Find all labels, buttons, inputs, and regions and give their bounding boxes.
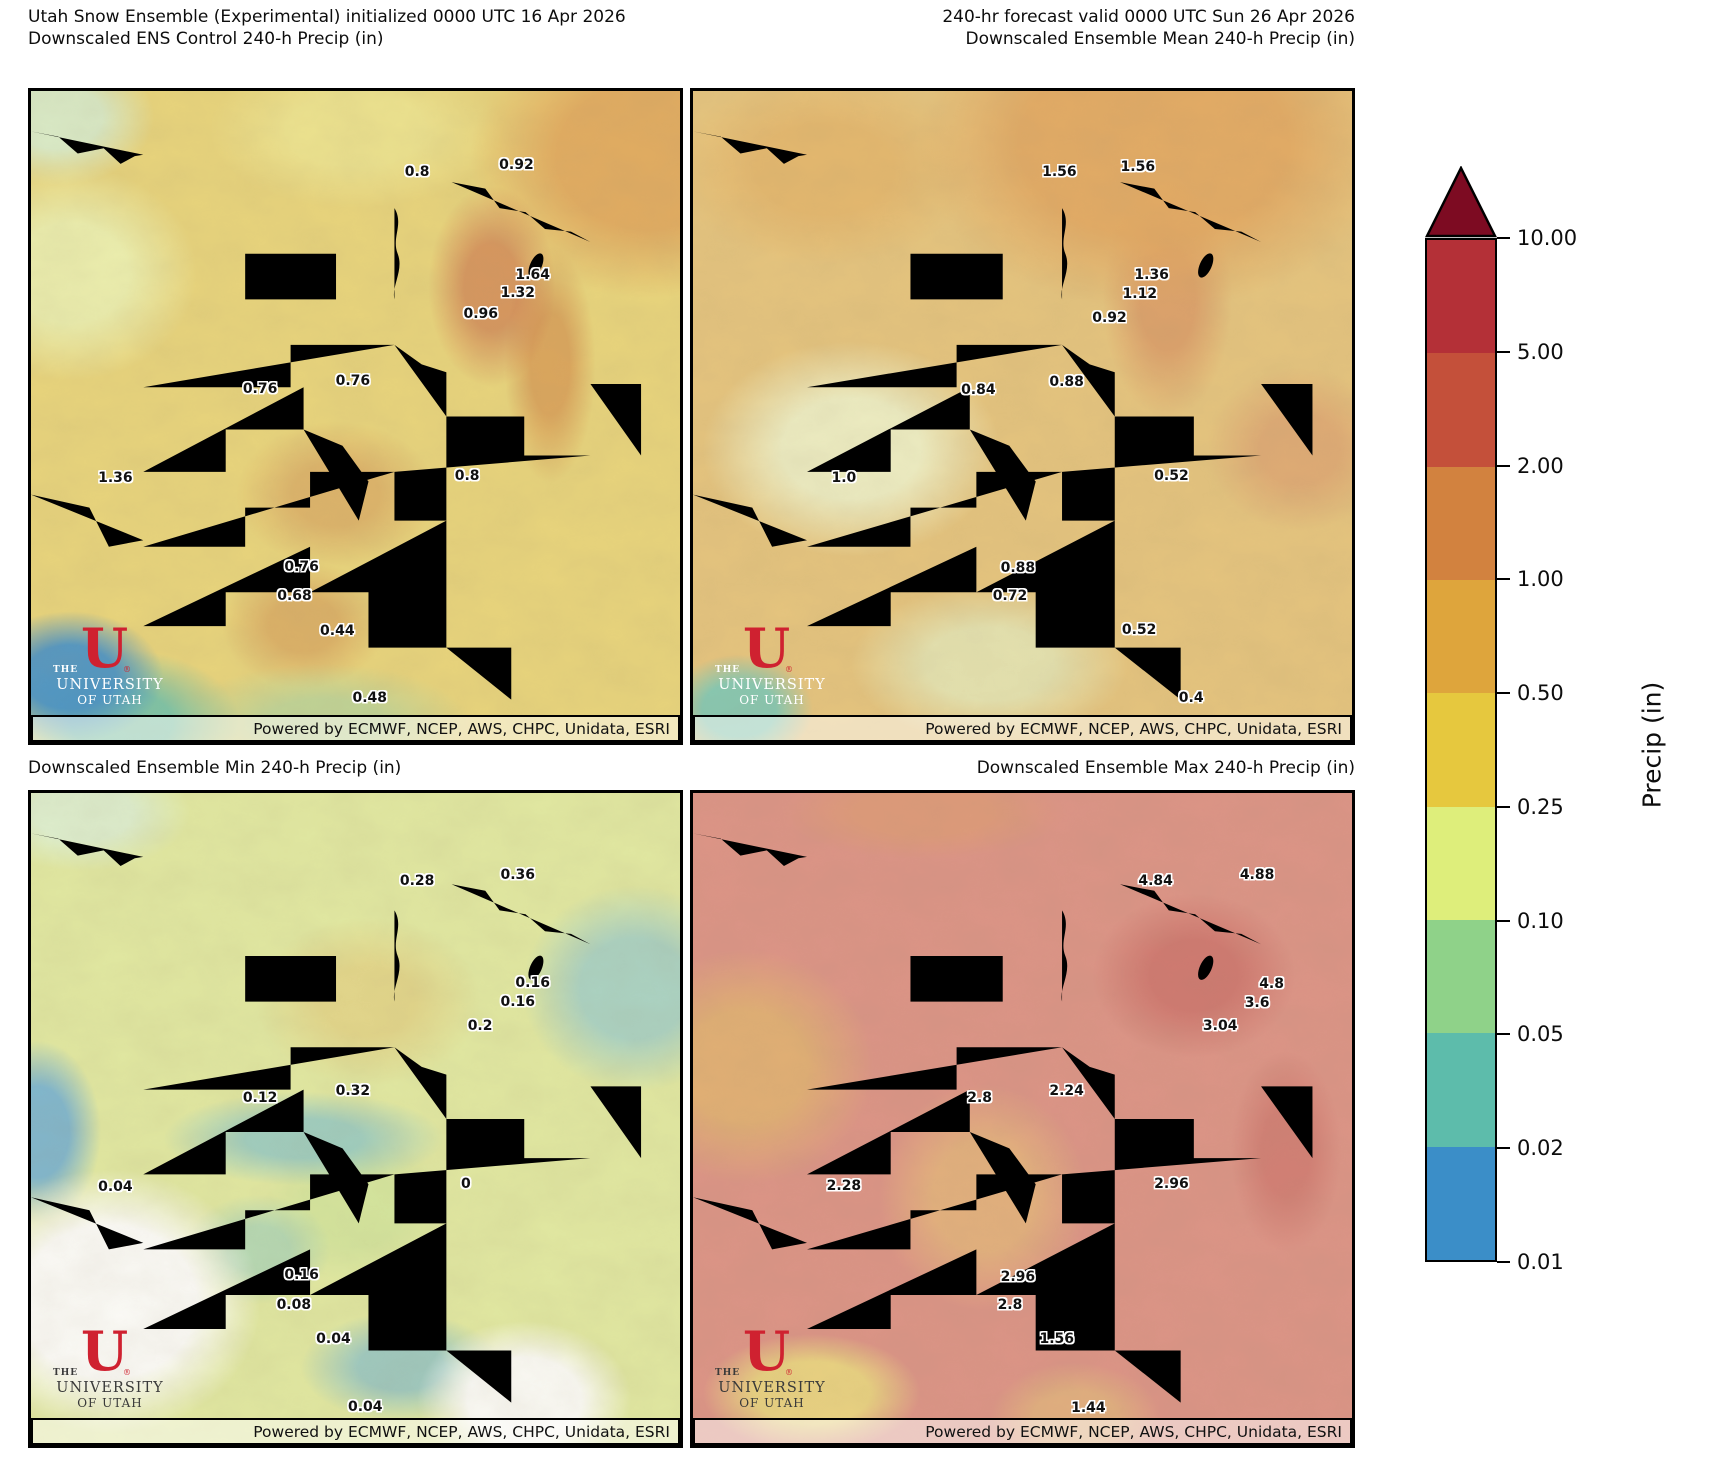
precip-value-label: 0.76 xyxy=(284,559,319,575)
map-panel-ens-control: 0.80.921.641.320.960.760.761.360.80.760.… xyxy=(28,88,683,745)
title-bottom-left: Downscaled Ensemble Min 240-h Precip (in… xyxy=(28,757,401,779)
precip-value-label: 1.56 xyxy=(1121,159,1156,175)
university-of-utah-logo: THE U ® UNIVERSITY OF UTAH xyxy=(45,629,175,709)
block-u-icon: U xyxy=(81,621,128,675)
logo-of-utah-text: OF UTAH xyxy=(45,1396,175,1410)
block-u-icon: U xyxy=(81,1324,128,1378)
logo-university-text: UNIVERSITY xyxy=(707,1380,837,1396)
precip-value-label: 0.16 xyxy=(515,975,550,991)
colorbar-segment xyxy=(1427,693,1495,806)
precip-value-label: 0.16 xyxy=(500,994,535,1010)
credit-bar: Powered by ECMWF, NCEP, AWS, CHPC, Unida… xyxy=(693,715,1352,742)
forecast-figure: Utah Snow Ensemble (Experimental) initia… xyxy=(0,0,1736,1470)
precip-value-label: 0.88 xyxy=(1001,560,1036,576)
tick-label: 2.00 xyxy=(1517,454,1564,478)
colorbar-tick: 0.05 xyxy=(1497,1022,1564,1046)
precip-value-label: 1.56 xyxy=(1039,1331,1074,1347)
colorbar-segment xyxy=(1427,920,1495,1033)
precip-value-label: 2.8 xyxy=(998,1297,1023,1313)
precip-value-label: 1.64 xyxy=(515,267,550,283)
precip-value-label: 0.72 xyxy=(993,588,1028,604)
precip-value-label: 2.8 xyxy=(967,1090,992,1106)
precip-value-label: 0.16 xyxy=(284,1267,319,1283)
tick-mark xyxy=(1497,465,1510,467)
colorbar-segment xyxy=(1427,240,1495,353)
colorbar-tick: 0.10 xyxy=(1497,909,1564,933)
logo-of-utah-text: OF UTAH xyxy=(707,1396,837,1410)
precip-value-label: 1.12 xyxy=(1123,286,1158,302)
precip-value-label: 0.2 xyxy=(468,1018,493,1034)
tick-label: 10.00 xyxy=(1517,226,1577,250)
tick-mark xyxy=(1497,578,1510,580)
title-top-left: Utah Snow Ensemble (Experimental) initia… xyxy=(28,6,626,50)
precip-value-label: 0.04 xyxy=(348,1399,383,1415)
colorbar-tick: 10.00 xyxy=(1497,226,1577,250)
colorbar-segment xyxy=(1427,353,1495,466)
logo-of-utah-text: OF UTAH xyxy=(707,693,837,707)
precip-value-label: 1.36 xyxy=(1134,267,1169,283)
precip-value-label: 0.52 xyxy=(1122,622,1157,638)
precip-value-label: 0.92 xyxy=(499,157,534,173)
logo-the-text: THE xyxy=(715,1368,740,1378)
colorbar-ticks: 10.005.002.001.000.500.250.100.050.020.0… xyxy=(1497,238,1617,1262)
colorbar-tick: 0.25 xyxy=(1497,795,1564,819)
precip-value-label: 0.12 xyxy=(243,1090,278,1106)
tick-label: 0.50 xyxy=(1517,681,1564,705)
credit-bar: Powered by ECMWF, NCEP, AWS, CHPC, Unida… xyxy=(31,1418,680,1445)
precip-value-label: 0 xyxy=(461,1176,471,1192)
precip-value-label: 1.32 xyxy=(500,285,535,301)
tick-label: 0.25 xyxy=(1517,795,1564,819)
map-panel-ensemble-max: 4.844.884.83.63.042.82.242.282.962.962.8… xyxy=(690,790,1355,1448)
colorbar-segment xyxy=(1427,807,1495,920)
precip-value-label: 0.52 xyxy=(1154,468,1189,484)
precip-value-label: 0.8 xyxy=(405,164,430,180)
logo-the-text: THE xyxy=(53,1368,78,1378)
precip-value-label: 0.36 xyxy=(500,867,535,883)
precip-value-label: 2.28 xyxy=(827,1178,862,1194)
tick-mark xyxy=(1497,920,1510,922)
precip-value-label: 0.4 xyxy=(1179,690,1204,706)
tick-label: 1.00 xyxy=(1517,567,1564,591)
colorbar-segment xyxy=(1427,1147,1495,1260)
tick-mark xyxy=(1497,692,1510,694)
precip-value-label: 0.32 xyxy=(336,1083,371,1099)
registered-mark-icon: ® xyxy=(123,1368,131,1377)
colorbar xyxy=(1425,238,1497,1262)
precip-value-label: 0.8 xyxy=(455,468,480,484)
map-panel-ensemble-mean: 1.561.561.361.120.920.840.881.00.520.880… xyxy=(690,88,1355,745)
colorbar-segment xyxy=(1427,1033,1495,1146)
tick-mark xyxy=(1497,1033,1510,1035)
tick-label: 0.01 xyxy=(1517,1250,1564,1274)
precip-value-label: 2.96 xyxy=(1154,1176,1189,1192)
logo-of-utah-text: OF UTAH xyxy=(45,693,175,707)
precip-value-label: 4.8 xyxy=(1259,976,1284,992)
colorbar-overflow-arrow xyxy=(1425,166,1497,238)
precip-value-label: 0.04 xyxy=(98,1179,133,1195)
colorbar-segment xyxy=(1427,467,1495,580)
precip-value-label: 1.44 xyxy=(1071,1400,1106,1416)
university-of-utah-logo: THE U ® UNIVERSITY OF UTAH xyxy=(707,629,837,709)
precip-value-label: 0.08 xyxy=(277,1297,312,1313)
logo-the-text: THE xyxy=(53,665,78,675)
colorbar-segment xyxy=(1427,580,1495,693)
title-top-right: 240-hr forecast valid 0000 UTC Sun 26 Ap… xyxy=(690,6,1355,50)
precip-value-label: 2.24 xyxy=(1049,1083,1084,1099)
logo-university-text: UNIVERSITY xyxy=(45,677,175,693)
logo-the-text: THE xyxy=(715,665,740,675)
colorbar-tick: 2.00 xyxy=(1497,454,1564,478)
colorbar-axis-label: Precip (in) xyxy=(1638,682,1667,809)
precip-value-label: 0.48 xyxy=(352,690,387,706)
credit-bar: Powered by ECMWF, NCEP, AWS, CHPC, Unida… xyxy=(693,1418,1352,1445)
credit-bar: Powered by ECMWF, NCEP, AWS, CHPC, Unida… xyxy=(31,715,680,742)
tick-label: 0.02 xyxy=(1517,1136,1564,1160)
block-u-icon: U xyxy=(743,1324,790,1378)
precip-value-label: 1.0 xyxy=(832,470,857,486)
precip-value-label: 0.28 xyxy=(400,873,435,889)
tick-mark xyxy=(1497,1261,1510,1263)
colorbar-tick: 0.02 xyxy=(1497,1136,1564,1160)
precip-value-label: 0.44 xyxy=(320,623,355,639)
precip-value-label: 0.84 xyxy=(961,382,996,398)
tick-label: 0.05 xyxy=(1517,1022,1564,1046)
tick-mark xyxy=(1497,237,1510,239)
registered-mark-icon: ® xyxy=(785,1368,793,1377)
logo-university-text: UNIVERSITY xyxy=(707,677,837,693)
tick-mark xyxy=(1497,1147,1510,1149)
precip-value-label: 0.88 xyxy=(1049,374,1084,390)
tick-mark xyxy=(1497,806,1510,808)
precip-value-label: 2.96 xyxy=(1001,1269,1036,1285)
tick-label: 0.10 xyxy=(1517,909,1564,933)
tick-label: 5.00 xyxy=(1517,340,1564,364)
logo-university-text: UNIVERSITY xyxy=(45,1380,175,1396)
colorbar-tick: 0.50 xyxy=(1497,681,1564,705)
precip-value-label: 4.84 xyxy=(1138,873,1173,889)
precip-value-label: 0.76 xyxy=(336,373,371,389)
precip-value-label: 3.6 xyxy=(1245,995,1270,1011)
colorbar-tick: 0.01 xyxy=(1497,1250,1564,1274)
precip-value-label: 0.92 xyxy=(1092,310,1127,326)
precip-value-label: 0.76 xyxy=(243,381,278,397)
map-panel-ensemble-min: 0.280.360.160.160.20.120.320.0400.160.08… xyxy=(28,790,683,1448)
colorbar-tick: 5.00 xyxy=(1497,340,1564,364)
colorbar-tick: 1.00 xyxy=(1497,567,1564,591)
precip-value-label: 3.04 xyxy=(1203,1018,1238,1034)
precip-value-label: 0.04 xyxy=(316,1331,351,1347)
title-bottom-right: Downscaled Ensemble Max 240-h Precip (in… xyxy=(690,757,1355,779)
precip-value-label: 4.88 xyxy=(1240,867,1275,883)
precip-value-label: 1.36 xyxy=(98,470,133,486)
registered-mark-icon: ® xyxy=(785,665,793,674)
registered-mark-icon: ® xyxy=(123,665,131,674)
tick-mark xyxy=(1497,351,1510,353)
precip-value-label: 1.56 xyxy=(1042,164,1077,180)
university-of-utah-logo: THE U ® UNIVERSITY OF UTAH xyxy=(707,1332,837,1412)
precip-value-label: 0.68 xyxy=(277,588,312,604)
university-of-utah-logo: THE U ® UNIVERSITY OF UTAH xyxy=(45,1332,175,1412)
precip-value-label: 0.96 xyxy=(463,306,498,322)
block-u-icon: U xyxy=(743,621,790,675)
